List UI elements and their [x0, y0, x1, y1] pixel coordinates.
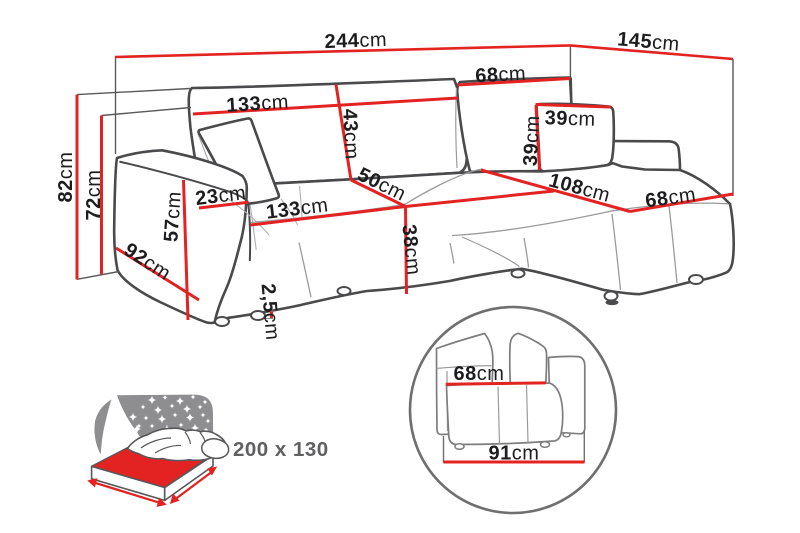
svg-text:133cm: 133cm	[226, 91, 290, 117]
svg-text:57cm: 57cm	[160, 190, 185, 242]
svg-text:244cm: 244cm	[324, 29, 387, 53]
svg-text:82cm: 82cm	[55, 152, 77, 203]
svg-text:200 x 130: 200 x 130	[233, 438, 329, 461]
svg-text:68cm: 68cm	[454, 363, 505, 385]
svg-text:72cm: 72cm	[83, 170, 105, 221]
svg-text:91cm: 91cm	[489, 443, 540, 465]
svg-text:68cm: 68cm	[475, 63, 527, 88]
svg-text:39cm: 39cm	[544, 107, 596, 131]
svg-text:43cm: 43cm	[338, 108, 363, 160]
svg-text:39cm: 39cm	[520, 115, 545, 167]
